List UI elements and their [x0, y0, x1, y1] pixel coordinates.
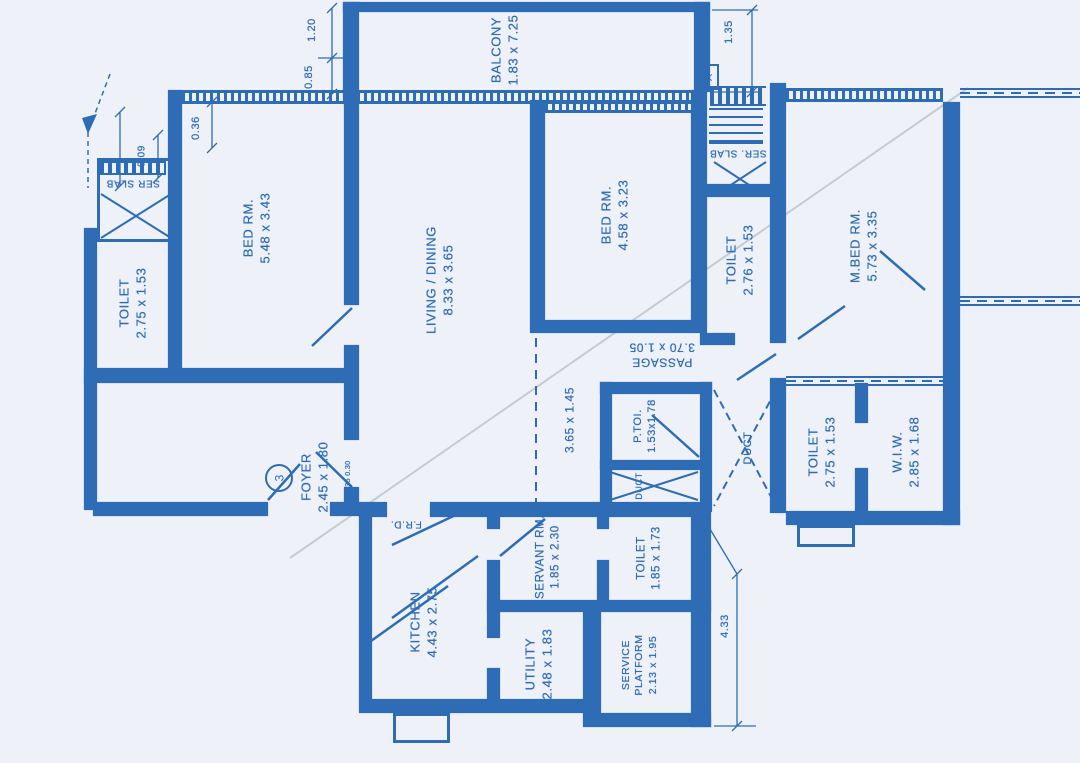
- wall: [943, 375, 960, 525]
- wall: [770, 378, 786, 513]
- room-name: M.BED RM.: [847, 209, 864, 283]
- room-name: TOILET: [723, 225, 740, 296]
- wall: [487, 668, 500, 699]
- room-name: SERVANT RM.: [533, 515, 548, 599]
- room-name: SER SLAB: [106, 176, 160, 189]
- room-label-toilet4: TOILET 1.85 x 1.73: [634, 526, 663, 590]
- room-label-duct-main: DUCT: [741, 432, 755, 465]
- fire-door-text: F.R.D.: [390, 517, 421, 530]
- wall: [691, 507, 711, 727]
- wall: [344, 90, 359, 305]
- dim-text: 0.85: [303, 65, 315, 89]
- room-dims: 3.65 x 1.45: [562, 387, 577, 453]
- room-label-foyer: FOYER 2.45 x 1.80: [298, 442, 331, 513]
- wall: [770, 83, 786, 343]
- room-label-passage: PASSAGE 3.70 x 1.05: [629, 339, 695, 370]
- wall: [700, 382, 712, 512]
- room-label-ser-slab-right: SER. SLAB: [709, 146, 766, 159]
- room-dims: 1.53x1.78: [645, 399, 659, 453]
- entry-door-marker: 3: [265, 464, 293, 492]
- room-name: SER. SLAB: [709, 146, 766, 159]
- wall: [600, 460, 700, 470]
- wall: [600, 382, 712, 394]
- room-name: DUCT: [634, 472, 646, 499]
- room-dims: 8.33 x 3.65: [440, 226, 457, 334]
- room-label-master-bed: M.BED RM. 5.73 x 3.35: [847, 209, 880, 283]
- window-band: [786, 88, 943, 102]
- wall: [700, 333, 735, 345]
- wall: [707, 184, 770, 197]
- room-label-balcony: BALCONY 1.83 x 7.25: [488, 15, 521, 86]
- wall: [84, 368, 344, 383]
- room-label-bed1: BED RM. 5.48 x 3.43: [240, 193, 273, 264]
- wall: [691, 90, 707, 333]
- wall: [430, 502, 707, 517]
- section-a-marker: A: [700, 64, 719, 90]
- room-name: LIVING / DINING: [423, 226, 440, 334]
- wall: [855, 383, 868, 423]
- wall: [855, 468, 868, 513]
- fire-door-label: F.R.D.: [390, 517, 421, 530]
- wall: [344, 345, 359, 440]
- room-dims: 2.85 x 1.68: [906, 417, 923, 488]
- window-band: [960, 88, 1080, 98]
- section-a-letter: A: [704, 74, 715, 81]
- room-label-toilet1: TOILET 2.75 x 1.53: [116, 268, 149, 339]
- room-name: TOILET: [805, 417, 822, 488]
- wall: [330, 502, 359, 516]
- dim-text: 1.35 0.30: [343, 460, 352, 493]
- window-sill-box: [797, 525, 855, 547]
- room-name: TOILET: [116, 268, 133, 339]
- wall: [545, 320, 691, 333]
- wall: [597, 513, 609, 529]
- room-name: BALCONY: [488, 15, 505, 86]
- wall: [530, 100, 545, 333]
- room-label-service-platform: SERVICE PLATFORM 2.13 x 1.95: [620, 624, 660, 706]
- room-dims: 2.48 x 1.83: [539, 629, 556, 700]
- wall: [93, 502, 268, 516]
- wall: [343, 2, 359, 104]
- room-dims: 3.70 x 1.05: [629, 339, 695, 354]
- room-dims: 1.85 x 1.73: [649, 526, 664, 590]
- dim-balcony-side: 1.20: [305, 18, 319, 42]
- room-label-wiw: W.I.W. 2.85 x 1.68: [889, 417, 922, 488]
- wall: [786, 511, 960, 525]
- room-dims: 2.75 x 1.53: [133, 268, 150, 339]
- dim-text: 1.20: [306, 18, 318, 42]
- dim-text: 0.36: [190, 116, 202, 140]
- dim-slab-gap: 0.09: [137, 145, 150, 167]
- open-area-dims: 3.65 x 1.45: [562, 387, 577, 453]
- wall: [487, 560, 500, 638]
- room-dims: 1.85 x 2.30: [548, 515, 563, 599]
- wall: [359, 515, 372, 699]
- room-dims: 4.43 x 2.75: [424, 587, 441, 658]
- room-name: BED RM.: [598, 180, 615, 251]
- dim-text: 0.09: [137, 145, 148, 167]
- room-label-living: LIVING / DINING 8.33 x 3.65: [423, 226, 456, 334]
- room-dims: 4.58 x 3.23: [615, 180, 632, 251]
- dim-right-offset: 1.35: [722, 20, 736, 44]
- wall: [359, 699, 585, 713]
- room-label-servant: SERVANT RM. 1.85 x 2.30: [533, 515, 562, 599]
- dim-text: 4: [104, 157, 114, 163]
- room-name: TOILET: [634, 526, 649, 590]
- wall: [597, 560, 609, 600]
- room-label-duct-small: DUCT: [634, 472, 646, 499]
- room-label-toilet3: TOILET 2.75 x 1.53: [805, 417, 838, 488]
- room-dims: 5.48 x 3.43: [257, 193, 274, 264]
- room-name: UTILITY: [522, 629, 539, 700]
- room-name: FOYER: [298, 442, 315, 513]
- entry-door-number: 3: [272, 475, 286, 482]
- dim-lift-width: 4: [104, 157, 116, 163]
- wall: [583, 612, 601, 713]
- dim-text: 1.35: [723, 20, 735, 44]
- room-name: SERVICE PLATFORM: [620, 624, 647, 706]
- room-dims: 2.13 x 1.95: [647, 624, 660, 706]
- window-band: [960, 296, 1080, 306]
- room-label-toilet2: TOILET 2.76 x 1.53: [723, 225, 756, 296]
- dim-text: 4.33: [719, 614, 731, 638]
- room-name: PASSAGE: [629, 354, 695, 369]
- wall: [343, 2, 710, 12]
- dim-wall-offset: 0.36: [189, 116, 203, 140]
- room-dims: 2.45 x 1.80: [315, 442, 332, 513]
- wall: [487, 513, 500, 529]
- wall: [487, 600, 711, 612]
- room-label-utility: UTILITY 2.48 x 1.83: [522, 629, 555, 700]
- room-name: P.TOI.: [631, 399, 645, 453]
- room-name: W.I.W.: [889, 417, 906, 488]
- wall: [943, 102, 960, 375]
- room-label-kitchen: KITCHEN 4.43 x 2.75: [407, 587, 440, 658]
- window-band: [545, 100, 691, 113]
- room-dims: 2.75 x 1.53: [822, 417, 839, 488]
- wall: [600, 382, 612, 512]
- dim-balcony-offset: 0.85: [302, 65, 316, 89]
- room-label-bed2: BED RM. 4.58 x 3.23: [598, 180, 631, 251]
- room-name: BED RM.: [240, 193, 257, 264]
- room-name: KITCHEN: [407, 587, 424, 658]
- room-dims: 2.76 x 1.53: [740, 225, 757, 296]
- room-name: DUCT: [741, 432, 755, 465]
- room-label-ser-slab-left: SER SLAB: [106, 176, 160, 189]
- room-dims: 1.83 x 7.25: [505, 15, 522, 86]
- floor-plan: BALCONY 1.83 x 7.25 BED RM. 5.48 x 3.43 …: [0, 0, 1080, 763]
- hatch-strip: [100, 161, 166, 175]
- dim-door-note: 1.35 0.30: [343, 460, 353, 493]
- planter-box: [393, 713, 450, 743]
- ser-slab-steps: [709, 108, 763, 144]
- room-label-p-toi: P.TOI. 1.53x1.78: [631, 399, 659, 453]
- dim-kitchen-side: 4.33: [718, 614, 732, 638]
- room-dims: 5.73 x 3.35: [864, 209, 881, 283]
